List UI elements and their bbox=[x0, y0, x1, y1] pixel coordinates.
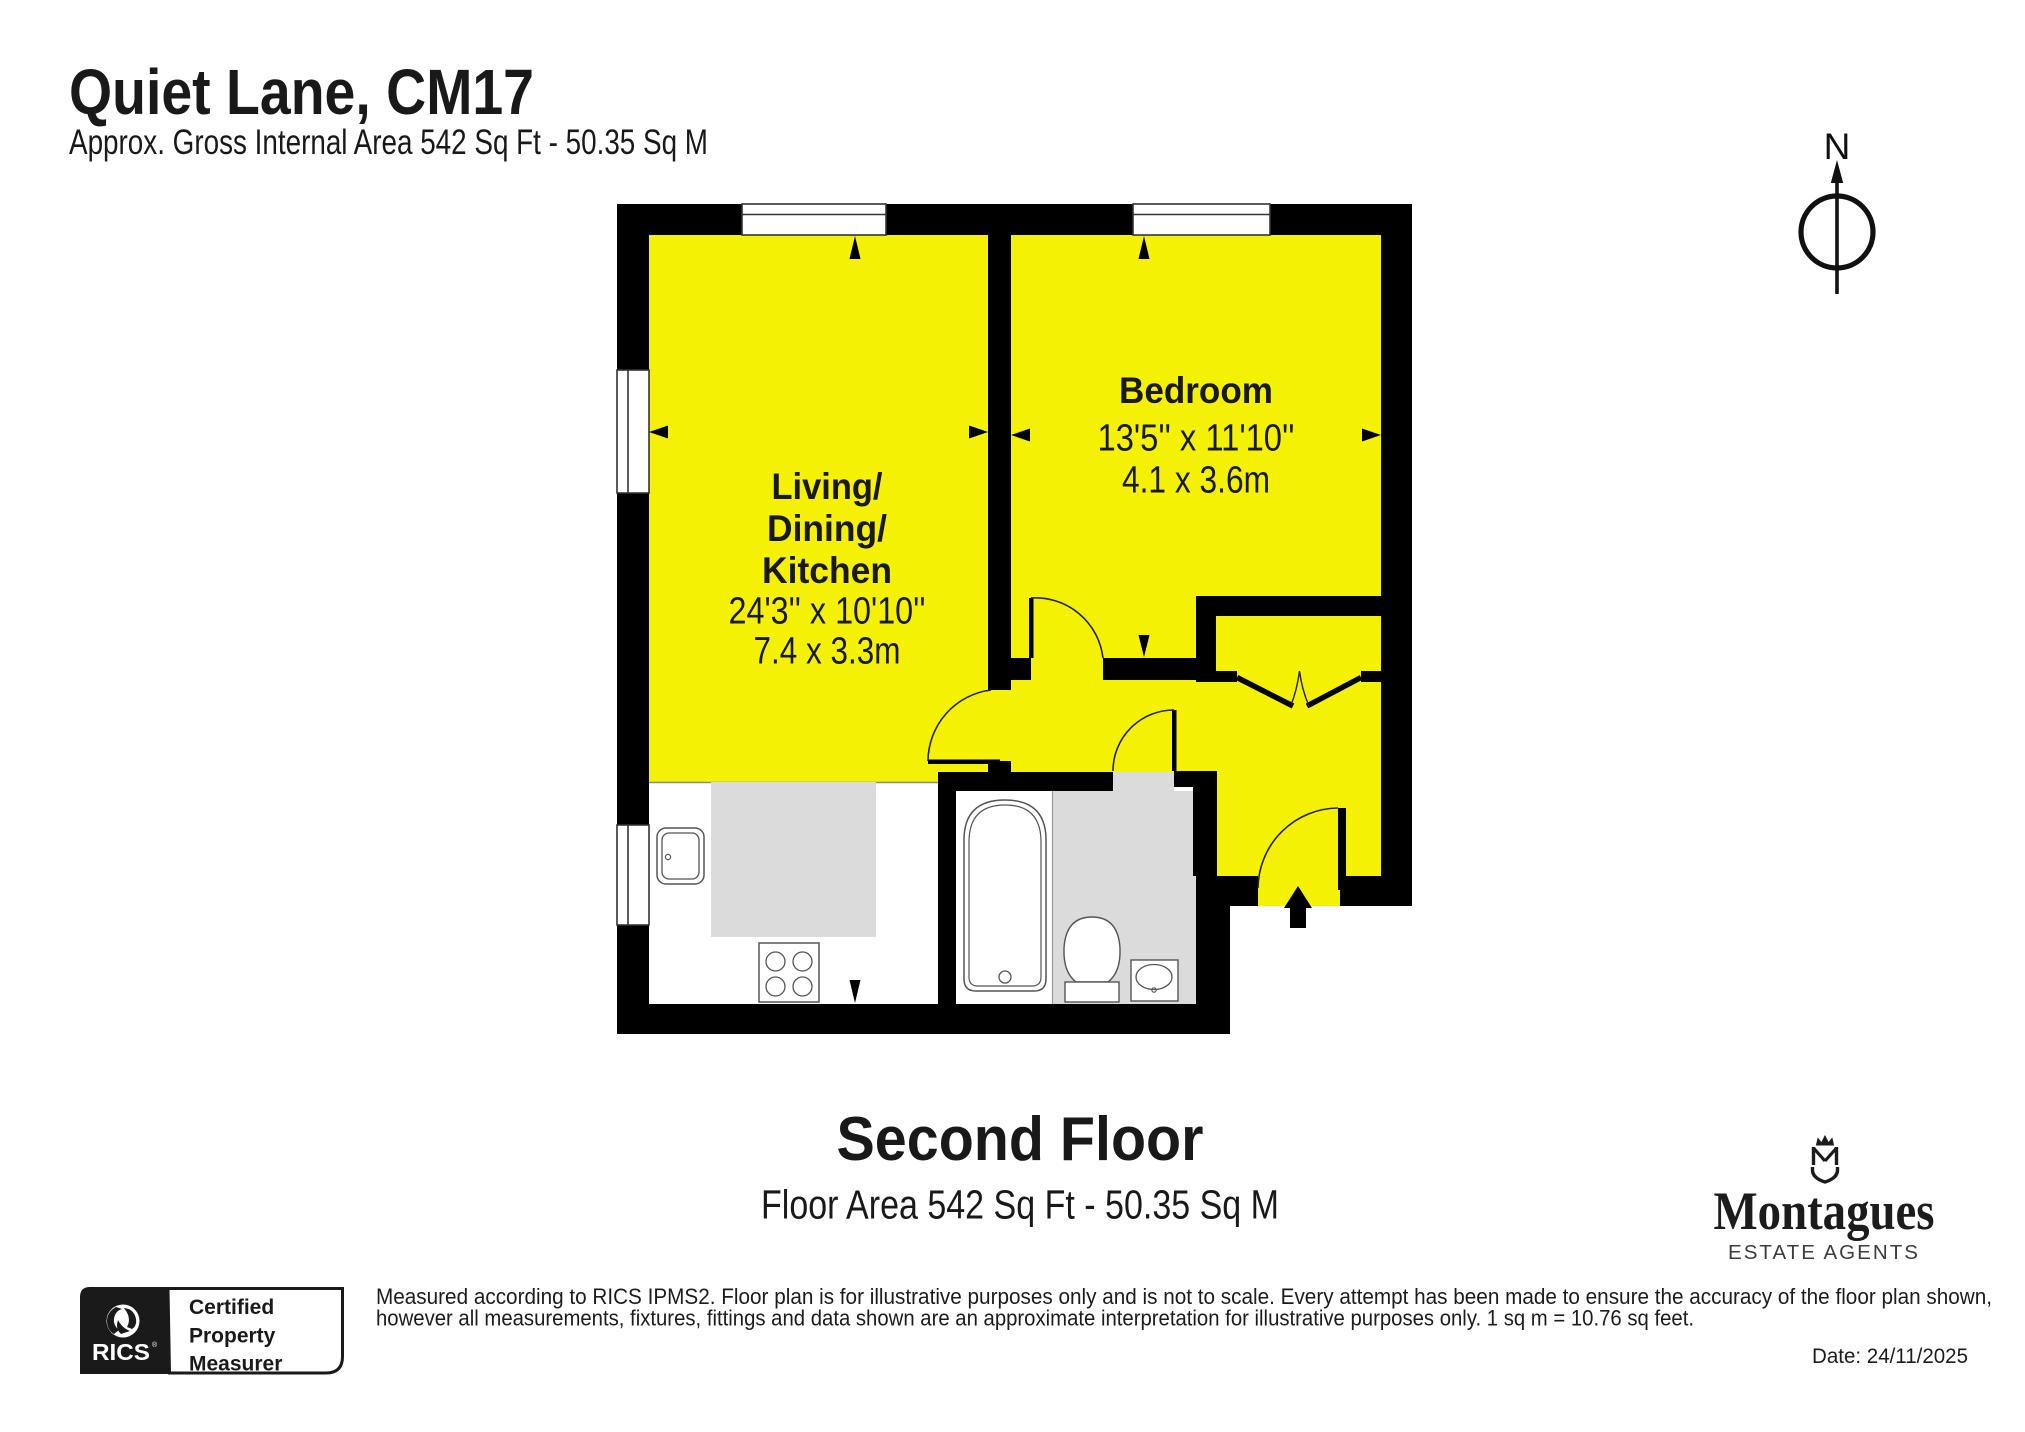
svg-text:Living/: Living/ bbox=[772, 466, 883, 507]
svg-text:ESTATE AGENTS: ESTATE AGENTS bbox=[1728, 1241, 1920, 1264]
svg-text:Certified: Certified bbox=[189, 1296, 274, 1319]
svg-text:Second Floor: Second Floor bbox=[837, 1105, 1204, 1174]
svg-text:Quiet Lane, CM17: Quiet Lane, CM17 bbox=[69, 56, 534, 128]
svg-text:Floor Area 542 Sq Ft - 50.35 S: Floor Area 542 Sq Ft - 50.35 Sq M bbox=[761, 1182, 1279, 1228]
svg-text:Measurer: Measurer bbox=[189, 1353, 282, 1376]
svg-text:13'5'' x 11'10'': 13'5'' x 11'10'' bbox=[1098, 418, 1295, 460]
svg-text:however all measurements, fixt: however all measurements, fixtures, fitt… bbox=[376, 1306, 1694, 1331]
svg-text:Bedroom: Bedroom bbox=[1119, 370, 1273, 411]
svg-text:Kitchen: Kitchen bbox=[762, 550, 892, 591]
svg-text:Montagues: Montagues bbox=[1714, 1181, 1935, 1241]
svg-text:RICS: RICS bbox=[92, 1339, 150, 1365]
svg-text:Dining/: Dining/ bbox=[767, 508, 887, 549]
svg-text:Date: 24/11/2025: Date: 24/11/2025 bbox=[1812, 1345, 1968, 1368]
svg-text:24'3'' x 10'10'': 24'3'' x 10'10'' bbox=[729, 591, 926, 633]
svg-text:Approx. Gross Internal Area 54: Approx. Gross Internal Area 542 Sq Ft - … bbox=[69, 123, 708, 162]
svg-text:Property: Property bbox=[189, 1325, 276, 1348]
svg-text:®: ® bbox=[152, 1341, 158, 1349]
svg-text:7.4 x 3.3m: 7.4 x 3.3m bbox=[754, 631, 901, 673]
svg-text:4.1 x 3.6m: 4.1 x 3.6m bbox=[1122, 460, 1270, 502]
